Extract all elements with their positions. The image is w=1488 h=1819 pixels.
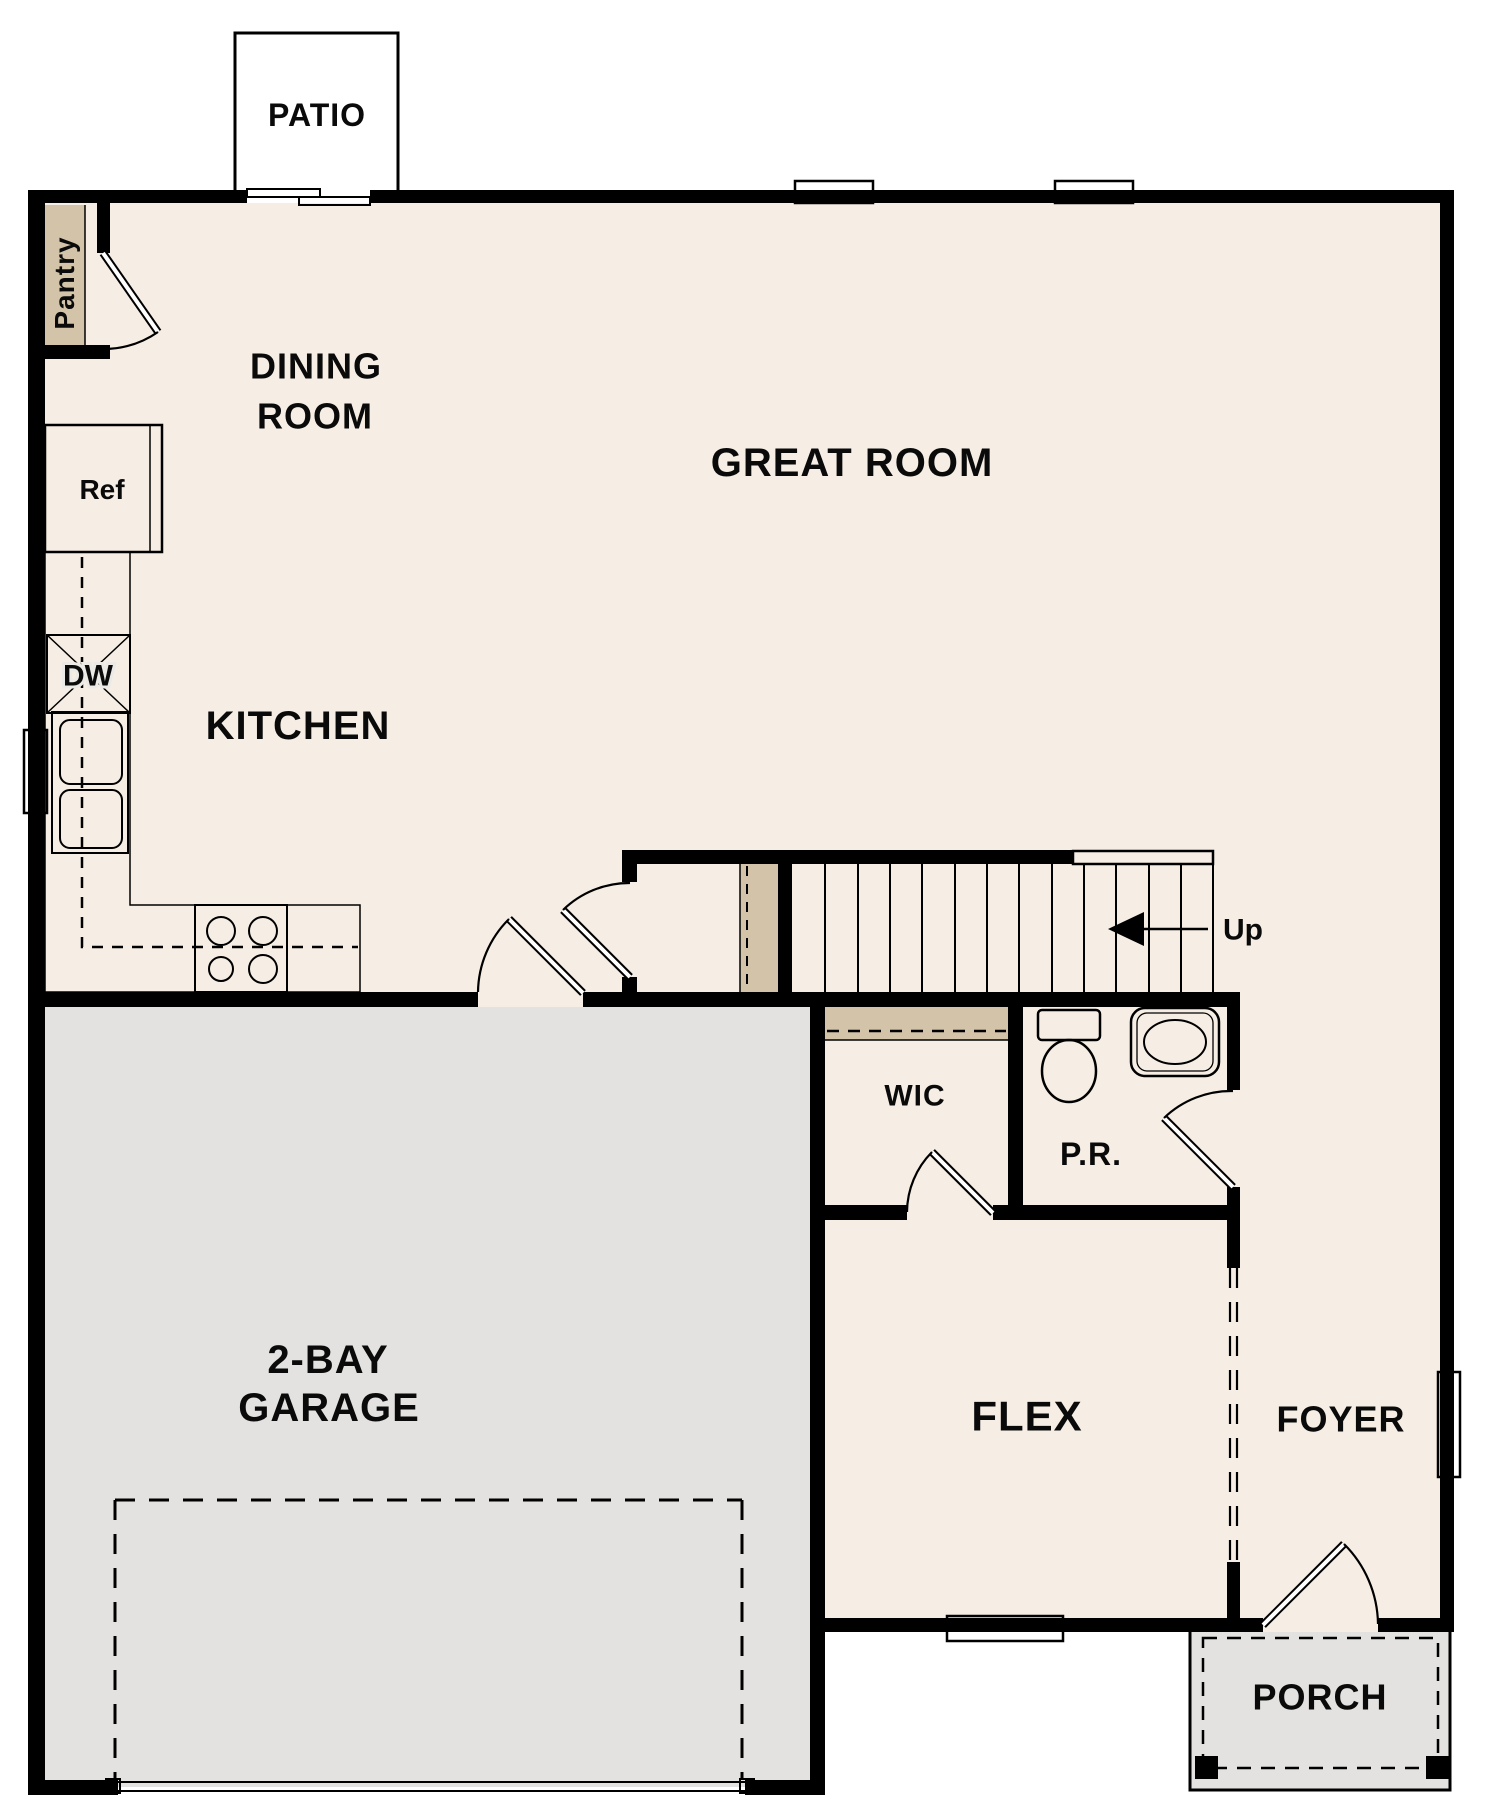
wall-foyer-bottom-left xyxy=(1240,1618,1263,1632)
kitchen-label: KITCHEN xyxy=(206,704,391,748)
patio: PATIO xyxy=(235,33,398,192)
wall-flex-foyer-stub-top xyxy=(1227,1220,1240,1268)
stairs-up-label: Up xyxy=(1223,914,1263,947)
wall-pr-bottom xyxy=(993,1205,1240,1220)
dining-room-label-line2: ROOM xyxy=(257,396,373,437)
foyer-label: FOYER xyxy=(1276,1399,1405,1440)
floor-plan-page: PATIO PORCH xyxy=(0,0,1488,1819)
wic-shelf xyxy=(825,1007,1008,1040)
garage-floor xyxy=(45,1007,810,1787)
floor-plan-drawing: PATIO PORCH xyxy=(0,0,1488,1819)
wall-hall-stub-bottom xyxy=(622,977,637,1007)
wall-garage-bottom-right-stub xyxy=(745,1780,825,1795)
wall-flex-bottom xyxy=(810,1618,1240,1632)
wall-garage-right xyxy=(810,992,825,1788)
pantry-label: Pantry xyxy=(49,236,80,329)
wall-garage-bottom-left-stub xyxy=(28,1780,118,1795)
wall-pantry-bottom xyxy=(43,345,110,359)
great-room-label: GREAT ROOM xyxy=(711,441,994,485)
refrigerator-label: Ref xyxy=(79,474,125,505)
wall-stairs-top xyxy=(622,850,1073,864)
porch: PORCH xyxy=(1190,1632,1450,1790)
dishwasher-label: DW xyxy=(63,660,114,693)
porch-post-left xyxy=(1195,1756,1218,1779)
wall-wic-right xyxy=(1008,992,1023,1220)
front-door-threshold xyxy=(1263,1616,1378,1632)
porch-label: PORCH xyxy=(1252,1677,1387,1718)
wall-wic-bottom xyxy=(810,1205,907,1220)
wall-exterior-right xyxy=(1440,190,1454,1632)
wall-kitchen-garage-left xyxy=(28,992,478,1007)
wall-pr-right-stub xyxy=(1227,1187,1240,1220)
wall-pantry-stub xyxy=(97,203,110,253)
garage-label-line1: 2-BAY xyxy=(267,1338,388,1382)
patio-label: PATIO xyxy=(268,97,366,133)
dining-room-label-line1: DINING xyxy=(250,346,382,387)
wall-hall-closet-right xyxy=(778,863,792,992)
hall-closet-shelf xyxy=(740,864,778,992)
powder-room-label: P.R. xyxy=(1060,1136,1122,1172)
wall-pr-right-top xyxy=(1227,992,1240,1090)
wic-label: WIC xyxy=(884,1080,945,1113)
wall-foyer-bottom-right xyxy=(1378,1618,1454,1632)
flex-label: FLEX xyxy=(971,1393,1082,1440)
wall-kitchen-garage-right xyxy=(583,992,1240,1007)
porch-post-right xyxy=(1426,1756,1449,1779)
garage-label-line2: GARAGE xyxy=(238,1386,420,1430)
patio-sliding-door xyxy=(247,189,370,205)
wall-exterior-top xyxy=(28,190,1454,203)
